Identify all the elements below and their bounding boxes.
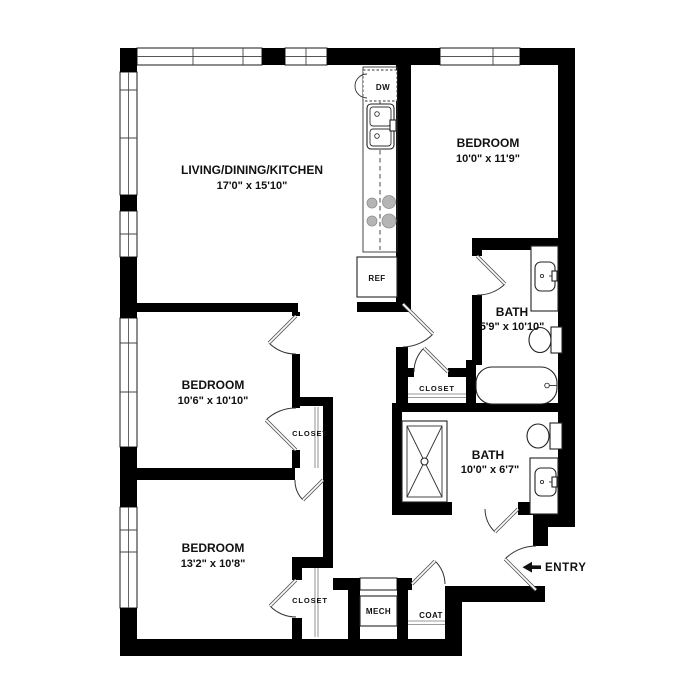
- room-dims-bedroom-bottom: 13'2" x 10'8": [181, 558, 246, 570]
- wall-segment: [533, 527, 548, 546]
- wall-segment: [472, 250, 482, 256]
- wall-segment: [137, 303, 298, 312]
- room-label-bedroom-bottom: BEDROOM: [182, 541, 245, 555]
- wall-segment: [292, 557, 333, 568]
- entry-arrow-icon: [523, 562, 542, 573]
- door-upper-bath: [477, 256, 505, 295]
- room-label-bath-lower: BATH: [472, 448, 504, 462]
- label-closet-bottom-bedroom: CLOSET: [292, 596, 328, 605]
- wall-segment: [327, 48, 440, 65]
- toilet-icon: [527, 423, 562, 449]
- room-dims-bedroom-middle: 10'6" x 10'10": [178, 395, 249, 407]
- wall-segment: [408, 368, 414, 377]
- wall-segment: [292, 568, 302, 580]
- room-dims-bath-lower: 10'0" x 6'7": [461, 464, 519, 476]
- room-label-bedroom-middle: BEDROOM: [182, 378, 245, 392]
- label-entry: ENTRY: [545, 562, 587, 574]
- bathtub-icon: [476, 367, 557, 404]
- wall-segment: [323, 397, 333, 568]
- window: [440, 48, 520, 65]
- wall-segment: [348, 590, 360, 639]
- label-closet-middle-bedroom: CLOSET: [292, 429, 328, 438]
- floor-plan-drawing: LIVING/DINING/KITCHEN 17'0" x 15'10" BED…: [0, 0, 697, 697]
- wall-segment: [120, 48, 137, 72]
- door-hall-closet: [414, 348, 448, 372]
- wall-segment: [120, 195, 137, 211]
- wall-segment: [392, 403, 402, 515]
- mech-louver-door: [360, 578, 397, 590]
- wall-segment: [472, 238, 575, 250]
- label-closet-hall: CLOSET: [419, 384, 455, 393]
- wall-segment: [292, 312, 300, 316]
- wall-segment: [292, 397, 300, 408]
- wall-segment: [558, 48, 575, 527]
- room-dims-living: 17'0" x 15'10": [217, 180, 288, 192]
- shower-icon: [402, 421, 447, 502]
- windows: [120, 48, 520, 608]
- wall-segment: [120, 447, 137, 507]
- wall-segment: [396, 347, 408, 412]
- door-coat-closet: [412, 561, 445, 584]
- window: [120, 507, 137, 608]
- room-dims-bedroom-top-right: 10'0" x 11'9": [456, 153, 520, 165]
- window: [120, 318, 137, 447]
- wall-segment: [397, 590, 408, 639]
- wall-segment: [137, 468, 295, 480]
- wall-segment: [357, 302, 411, 312]
- window: [137, 48, 262, 65]
- mech-room: [360, 578, 397, 626]
- wall-segment: [120, 257, 137, 318]
- door-hallway: [403, 304, 433, 347]
- door-middle-bedroom: [269, 316, 296, 354]
- label-coat: COAT: [419, 611, 443, 620]
- window: [120, 72, 137, 195]
- window: [120, 211, 137, 257]
- stove-icon: [367, 196, 396, 229]
- room-label-living: LIVING/DINING/KITCHEN: [181, 163, 323, 177]
- label-ref: REF: [368, 274, 385, 283]
- vanity-sink-icon: [530, 458, 558, 514]
- wall-segment: [333, 578, 360, 590]
- kitchen-fixtures: [355, 67, 397, 297]
- label-dw: DW: [376, 83, 390, 92]
- wall-segment: [292, 618, 302, 639]
- wall-segment: [292, 450, 300, 468]
- label-mech: MECH: [366, 607, 391, 616]
- kitchen-sink-icon: [367, 104, 396, 149]
- wall-segment: [397, 578, 412, 590]
- wall-segment: [392, 502, 452, 515]
- floor-plan: LIVING/DINING/KITCHEN 17'0" x 15'10" BED…: [0, 0, 697, 697]
- door-bottom-bedroom: [295, 480, 323, 500]
- wall-segment: [396, 65, 411, 302]
- wall-segment: [292, 354, 300, 397]
- room-label-bedroom-top-right: BEDROOM: [457, 136, 520, 150]
- window: [285, 48, 327, 65]
- wall-segment: [120, 639, 462, 656]
- room-labels: LIVING/DINING/KITCHEN 17'0" x 15'10" BED…: [178, 83, 587, 620]
- wall-segment: [262, 48, 285, 65]
- room-dims-bath-upper: 5'9" x 10'10": [480, 321, 545, 333]
- door-lower-bath: [485, 509, 518, 532]
- room-label-bath-upper: BATH: [496, 305, 528, 319]
- vanity-sink-icon: [531, 246, 558, 311]
